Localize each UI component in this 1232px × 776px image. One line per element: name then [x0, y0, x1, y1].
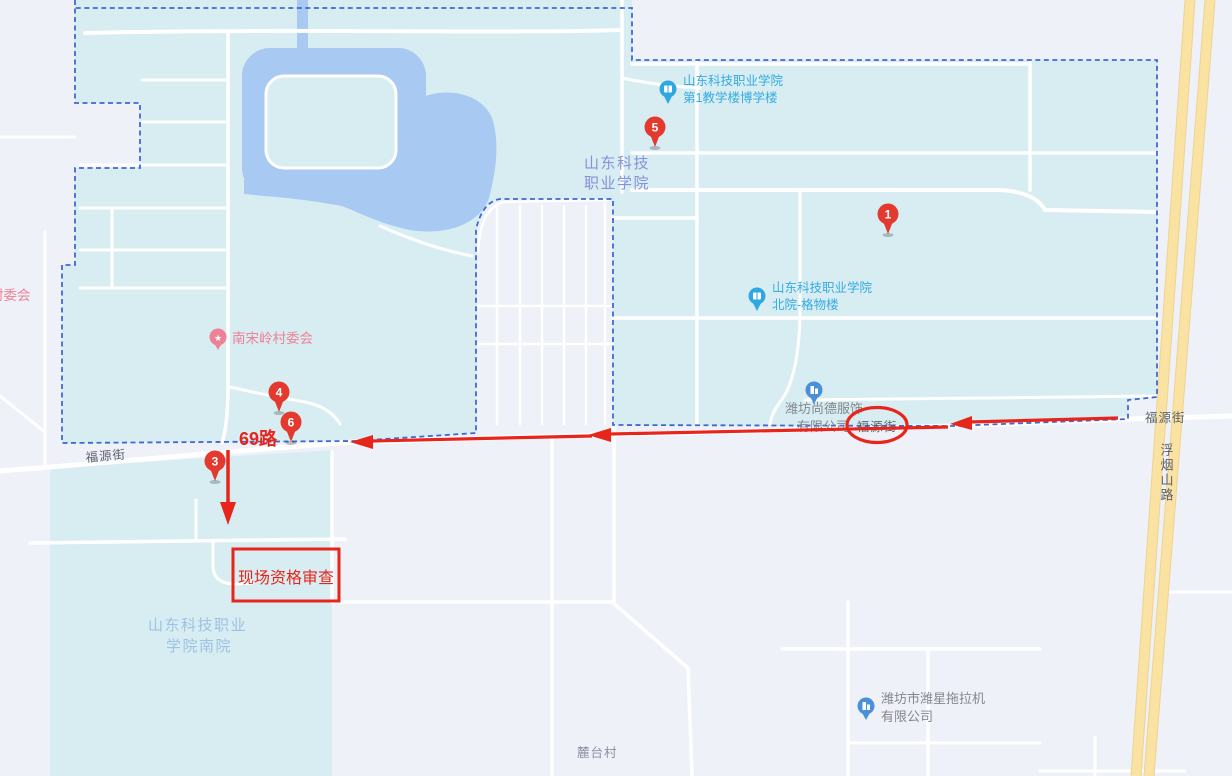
poi-company2-line2: 有限公司	[881, 709, 933, 724]
road-label-fuyanshan: 浮烟山路	[1159, 443, 1174, 503]
poi-building2-line2: 北院-格物楼	[772, 297, 839, 312]
poi-building1-line2: 第1教学楼博学楼	[683, 90, 777, 105]
svg-text:5: 5	[652, 121, 659, 135]
map-svg[interactable]: 福源街 福源街 福源街 浮烟山路 麓台村 山东科技 职业学院 山东科技职业 学院…	[0, 0, 1232, 776]
site-check-label: 现场资格审查	[238, 569, 334, 587]
svg-text:4: 4	[276, 386, 283, 400]
bus-route-label: 69路	[239, 428, 278, 449]
road-label-fuyuanjie-center: 福源街	[857, 419, 898, 434]
map-canvas[interactable]: 福源街 福源街 福源街 浮烟山路 麓台村 山东科技 职业学院 山东科技职业 学院…	[0, 0, 1232, 776]
campus-north-label-line1: 山东科技	[584, 155, 650, 172]
poi-company1-line2: 有限公司	[797, 419, 849, 434]
road-label-fuyuanjie-east: 福源街	[1145, 410, 1186, 425]
poi-company1-line1: 潍坊尚德服饰	[785, 401, 863, 416]
poi-village-committee2-label: 村委会	[0, 288, 31, 303]
campus-north-label-line2: 职业学院	[584, 174, 650, 192]
campus-south-label-line1: 山东科技职业	[148, 617, 247, 634]
svg-text:1: 1	[885, 208, 892, 222]
poi-building1-line1: 山东科技职业学院	[683, 73, 784, 88]
svg-text:6: 6	[288, 416, 295, 430]
campus-south-area	[50, 450, 332, 776]
village-label-lutai: 麓台村	[577, 745, 618, 760]
campus-south-label-line2: 学院南院	[166, 637, 232, 655]
svg-text:3: 3	[212, 455, 219, 469]
lake-island	[266, 76, 396, 168]
svg-text:★: ★	[214, 333, 222, 343]
poi-building2-line1: 山东科技职业学院	[772, 280, 873, 295]
poi-company2-line1: 潍坊市潍星拖拉机	[881, 691, 985, 706]
poi-village-committee-label: 南宋岭村委会	[232, 331, 313, 346]
